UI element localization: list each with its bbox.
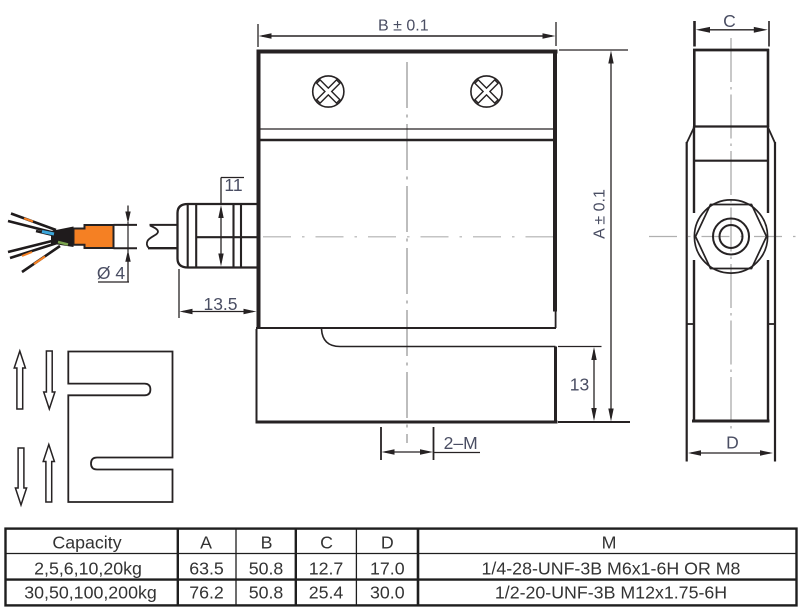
svg-text:12.7: 12.7 xyxy=(309,558,344,578)
svg-text:1/2-20-UNF-3B M12x1.75-6H: 1/2-20-UNF-3B M12x1.75-6H xyxy=(495,583,727,603)
svg-text:25.4: 25.4 xyxy=(309,583,344,603)
svg-text:2,5,6,10,20kg: 2,5,6,10,20kg xyxy=(34,558,142,578)
svg-text:2–M: 2–M xyxy=(444,433,478,453)
svg-text:1/4-28-UNF-3B M6x1-6H OR M8: 1/4-28-UNF-3B M6x1-6H OR M8 xyxy=(482,558,741,578)
svg-text:76.2: 76.2 xyxy=(189,583,224,603)
svg-text:C: C xyxy=(320,533,333,553)
svg-text:D: D xyxy=(381,533,394,553)
svg-text:B ± 0.1: B ± 0.1 xyxy=(378,17,429,34)
svg-text:M: M xyxy=(602,533,617,553)
svg-text:30,50,100,200kg: 30,50,100,200kg xyxy=(24,583,157,603)
svg-text:Ø 4: Ø 4 xyxy=(97,263,125,283)
svg-text:13: 13 xyxy=(570,375,589,395)
svg-text:D: D xyxy=(726,432,739,452)
svg-text:B: B xyxy=(261,533,273,553)
svg-text:A ± 0.1: A ± 0.1 xyxy=(592,189,609,239)
svg-text:Capacity: Capacity xyxy=(52,533,121,553)
svg-text:50.8: 50.8 xyxy=(249,558,284,578)
svg-text:17.0: 17.0 xyxy=(370,558,405,578)
svg-text:13.5: 13.5 xyxy=(203,294,237,314)
svg-text:30.0: 30.0 xyxy=(370,583,405,603)
svg-text:63.5: 63.5 xyxy=(189,558,224,578)
svg-text:C: C xyxy=(723,11,736,31)
svg-text:A: A xyxy=(200,533,212,553)
svg-text:50.8: 50.8 xyxy=(249,583,284,603)
svg-text:11: 11 xyxy=(224,175,242,195)
